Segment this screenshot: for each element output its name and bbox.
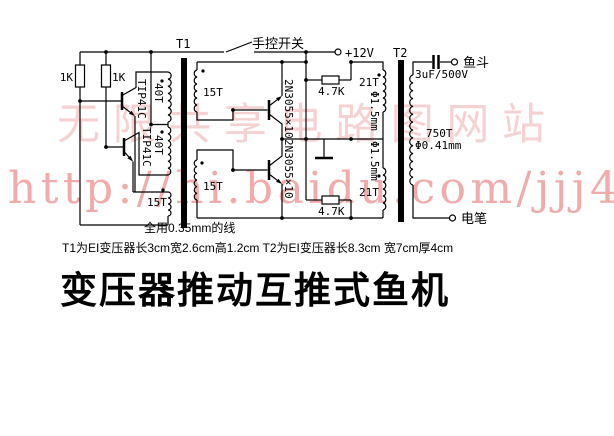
- polarity-dot: [160, 130, 163, 133]
- annotations: 全用0.35mm的线 T1为EI变压器长3cm宽2.6cm高1.2cm T2为E…: [60, 220, 453, 312]
- t1-core: [181, 58, 187, 228]
- terminal-circle-fish-bucket: [452, 59, 458, 65]
- resistor-1k-left-label: 1K: [60, 71, 74, 84]
- page-title: 变压器推动互推式鱼机: [60, 268, 450, 312]
- power-terminal-label: +12V: [345, 46, 374, 60]
- circuit-schematic: 无限共享电路图网站 http://hi.baidu.com/jjj4 手控开关 …: [0, 0, 614, 436]
- transformer-note: T1为EI变压器长3cm宽2.6cm高1.2cm T2为EI变压器长8.3cm …: [62, 240, 453, 255]
- transistor-2n3055-2-label: 2N3055×10: [282, 139, 295, 199]
- transistor-tip41c-2-label: TIP41C: [140, 127, 153, 167]
- t2-core: [398, 60, 404, 222]
- winding-40t-1-label: 40T: [152, 83, 165, 103]
- transistor-2n3055-1-label: 2N3055×10: [282, 79, 295, 139]
- terminal-circle-12v: [335, 49, 341, 55]
- polarity-dot: [200, 161, 203, 164]
- polarity-dot: [160, 79, 163, 82]
- winding-15t-secondary-1-label: 15T: [203, 86, 223, 99]
- schematic-page: 无限共享电路图网站 http://hi.baidu.com/jjj4 手控开关 …: [0, 0, 614, 436]
- wire-gauge-1-label: Φ1.5mm: [368, 91, 381, 131]
- watermark-line1: 无限共享电路图网站: [57, 100, 545, 150]
- transformer-t2-label: T2: [393, 46, 407, 60]
- resistor-1k-right-symbol: [102, 65, 111, 87]
- terminal-circle-electric-pen: [450, 215, 456, 221]
- polarity-dot: [377, 73, 380, 76]
- switch-label: 手控开关: [252, 36, 304, 51]
- watermark-line2: http://hi.baidu.com/jjj4: [8, 163, 614, 214]
- winding-21t-2-label: 21T: [359, 186, 379, 199]
- capacitor-label: 3uF/500V: [415, 68, 468, 81]
- winding-15t-feedback-label: 15T: [147, 196, 167, 209]
- fish-bucket-label: 鱼斗: [463, 55, 489, 70]
- winding-21t-1-label: 21T: [359, 76, 379, 89]
- wire-note: 全用0.35mm的线: [144, 220, 235, 235]
- wire-gauge-750t-label: Φ0.41mm: [415, 139, 462, 152]
- resistor-1k-left-symbol: [76, 65, 85, 87]
- transistor-tip41c-1-label: TIP41C: [135, 79, 148, 119]
- coil-15t-secondary-1: [194, 70, 197, 112]
- resistor-4k7-2-label: 4.7K: [318, 205, 345, 218]
- resistor-1k-right-label: 1K: [112, 71, 126, 84]
- winding-15t-secondary-2-label: 15T: [203, 180, 223, 193]
- resistor-4k7-2-symbol: [322, 196, 339, 204]
- electric-pen-label: 电笔: [461, 211, 487, 226]
- polarity-dot: [201, 69, 204, 72]
- transformer-t1-label: T1: [176, 37, 190, 51]
- resistor-4k7-1-label: 4.7K: [318, 85, 345, 98]
- polarity-dot: [377, 174, 380, 177]
- coil-21t-1: [383, 70, 386, 112]
- watermark: 无限共享电路图网站 http://hi.baidu.com/jjj4: [8, 100, 614, 214]
- resistor-4k7-1-symbol: [322, 76, 339, 84]
- polarity-dot: [161, 188, 164, 191]
- winding-40t-2-label: 40T: [152, 135, 165, 155]
- switch-icon: [226, 42, 252, 52]
